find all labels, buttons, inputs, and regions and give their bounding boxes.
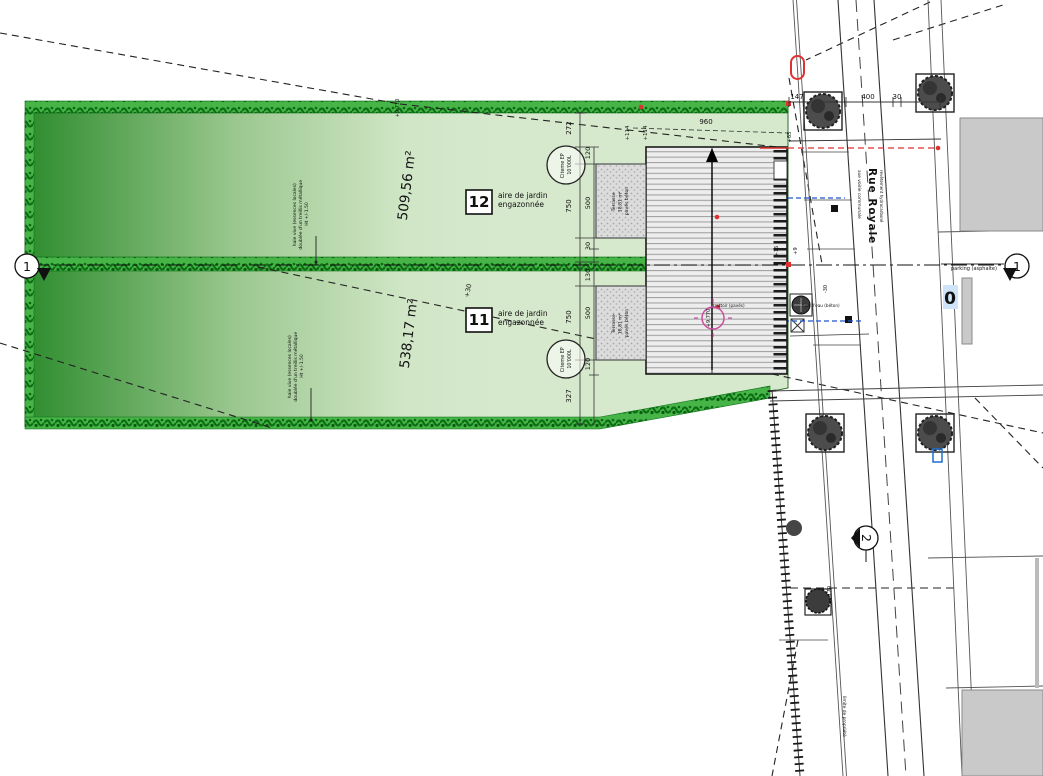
road-surface-label: revêtement hydrocarboné (879, 170, 884, 223)
terrace-label-line: 18,81 m² (618, 313, 624, 334)
site-plan: +9.770 +9.770 272 750 750 327 120 500 30 (0, 0, 1043, 776)
dim-label: 750 (565, 310, 573, 323)
terrace-label-line: pavés béton (623, 187, 630, 215)
terrace-label-line: 18,81 m² (618, 191, 624, 212)
cistern-volume: 10'000L (567, 155, 573, 175)
blue-zero-value: 0 (944, 289, 956, 309)
level-value: -30 (823, 285, 829, 293)
dim-label: 327 (565, 389, 573, 402)
level-value: +9.770 (706, 309, 712, 328)
dim-label: 960 (699, 118, 712, 126)
paving-label: trottoir (pavés) (713, 303, 745, 308)
dim-label: 130 (584, 269, 592, 281)
cistern-11: Citerne EP 10'000L (547, 340, 585, 378)
section-number: 1 (23, 259, 31, 274)
level-value: +65 (787, 132, 793, 143)
dim-label: 30 (584, 242, 592, 250)
hedge-note-line: doublée d'un treillis métallique (292, 332, 299, 402)
section-number: 2 (859, 534, 874, 542)
property-limit-label: limite de propriété (841, 696, 848, 737)
dim-label: 500 (584, 307, 592, 319)
marker-square-icon (845, 316, 852, 323)
level-value: +9.770 (395, 99, 401, 118)
cistern-label: Citerne EP (560, 153, 566, 178)
hedge-note-line: haie vive (essences locales) (287, 335, 293, 398)
lot-garden-label: engazonnée (498, 200, 544, 209)
level-value: +16 (774, 246, 780, 257)
lot-garden-label: aire de jardin (498, 309, 548, 318)
dim-label: +114 (625, 125, 631, 141)
level-value: -170 (827, 585, 833, 598)
hedge-note-line: Ht +/-1.50 (304, 202, 310, 226)
dim-label: 400 (861, 93, 874, 101)
lot-garden-label: engazonnée (498, 318, 544, 327)
cistern-12: Citerne EP 10'000L (547, 146, 585, 184)
hedge-note-line: Ht +/-1.50 (299, 354, 305, 378)
terrace-label-line: Terrasse (611, 192, 617, 212)
terrace-11-label: Terrasse 18,81 m² pavés béton (611, 309, 630, 337)
terrace-label-line: Terrasse (611, 314, 617, 334)
road-axis-label: axe voirie communale (856, 170, 862, 219)
dim-label: 30 (893, 93, 902, 101)
level-value: +9 (793, 247, 799, 254)
hedge-note-line: doublée d'un treillis métallique (297, 180, 304, 250)
gutter-label: filet d'eau (béton) (802, 303, 840, 308)
terrace-label-line: pavés béton (623, 309, 630, 337)
cistern-label: Citerne EP (560, 347, 566, 372)
dim-label: 147 (790, 93, 803, 101)
cistern-volume: 10'000L (567, 349, 573, 369)
lot-number: 12 (469, 193, 490, 211)
dim-label: 500 (584, 197, 592, 209)
hedge-note-line: haie vive (essences locales) (292, 183, 298, 246)
dim-label: 750 (565, 199, 573, 212)
blue-zero-marker: 0 (943, 285, 958, 309)
terrace-12-label: Terrasse 18,81 m² pavés béton (611, 187, 630, 215)
parking-label: parking (asphalte) (951, 266, 997, 272)
lot-garden-label: aire de jardin (498, 191, 548, 200)
site-plan-drawing: +9.770 +9.770 272 750 750 327 120 500 30 (0, 0, 1043, 776)
street-name-label: Rue Royale (866, 168, 878, 244)
dim-label: 272 (565, 121, 573, 134)
marker-square-icon (831, 205, 838, 212)
dim-label: 120 (584, 147, 592, 159)
lot-number: 11 (469, 311, 490, 329)
dim-label: +114 (643, 125, 649, 141)
building-footprint (646, 147, 787, 374)
tree-icon (786, 520, 802, 536)
